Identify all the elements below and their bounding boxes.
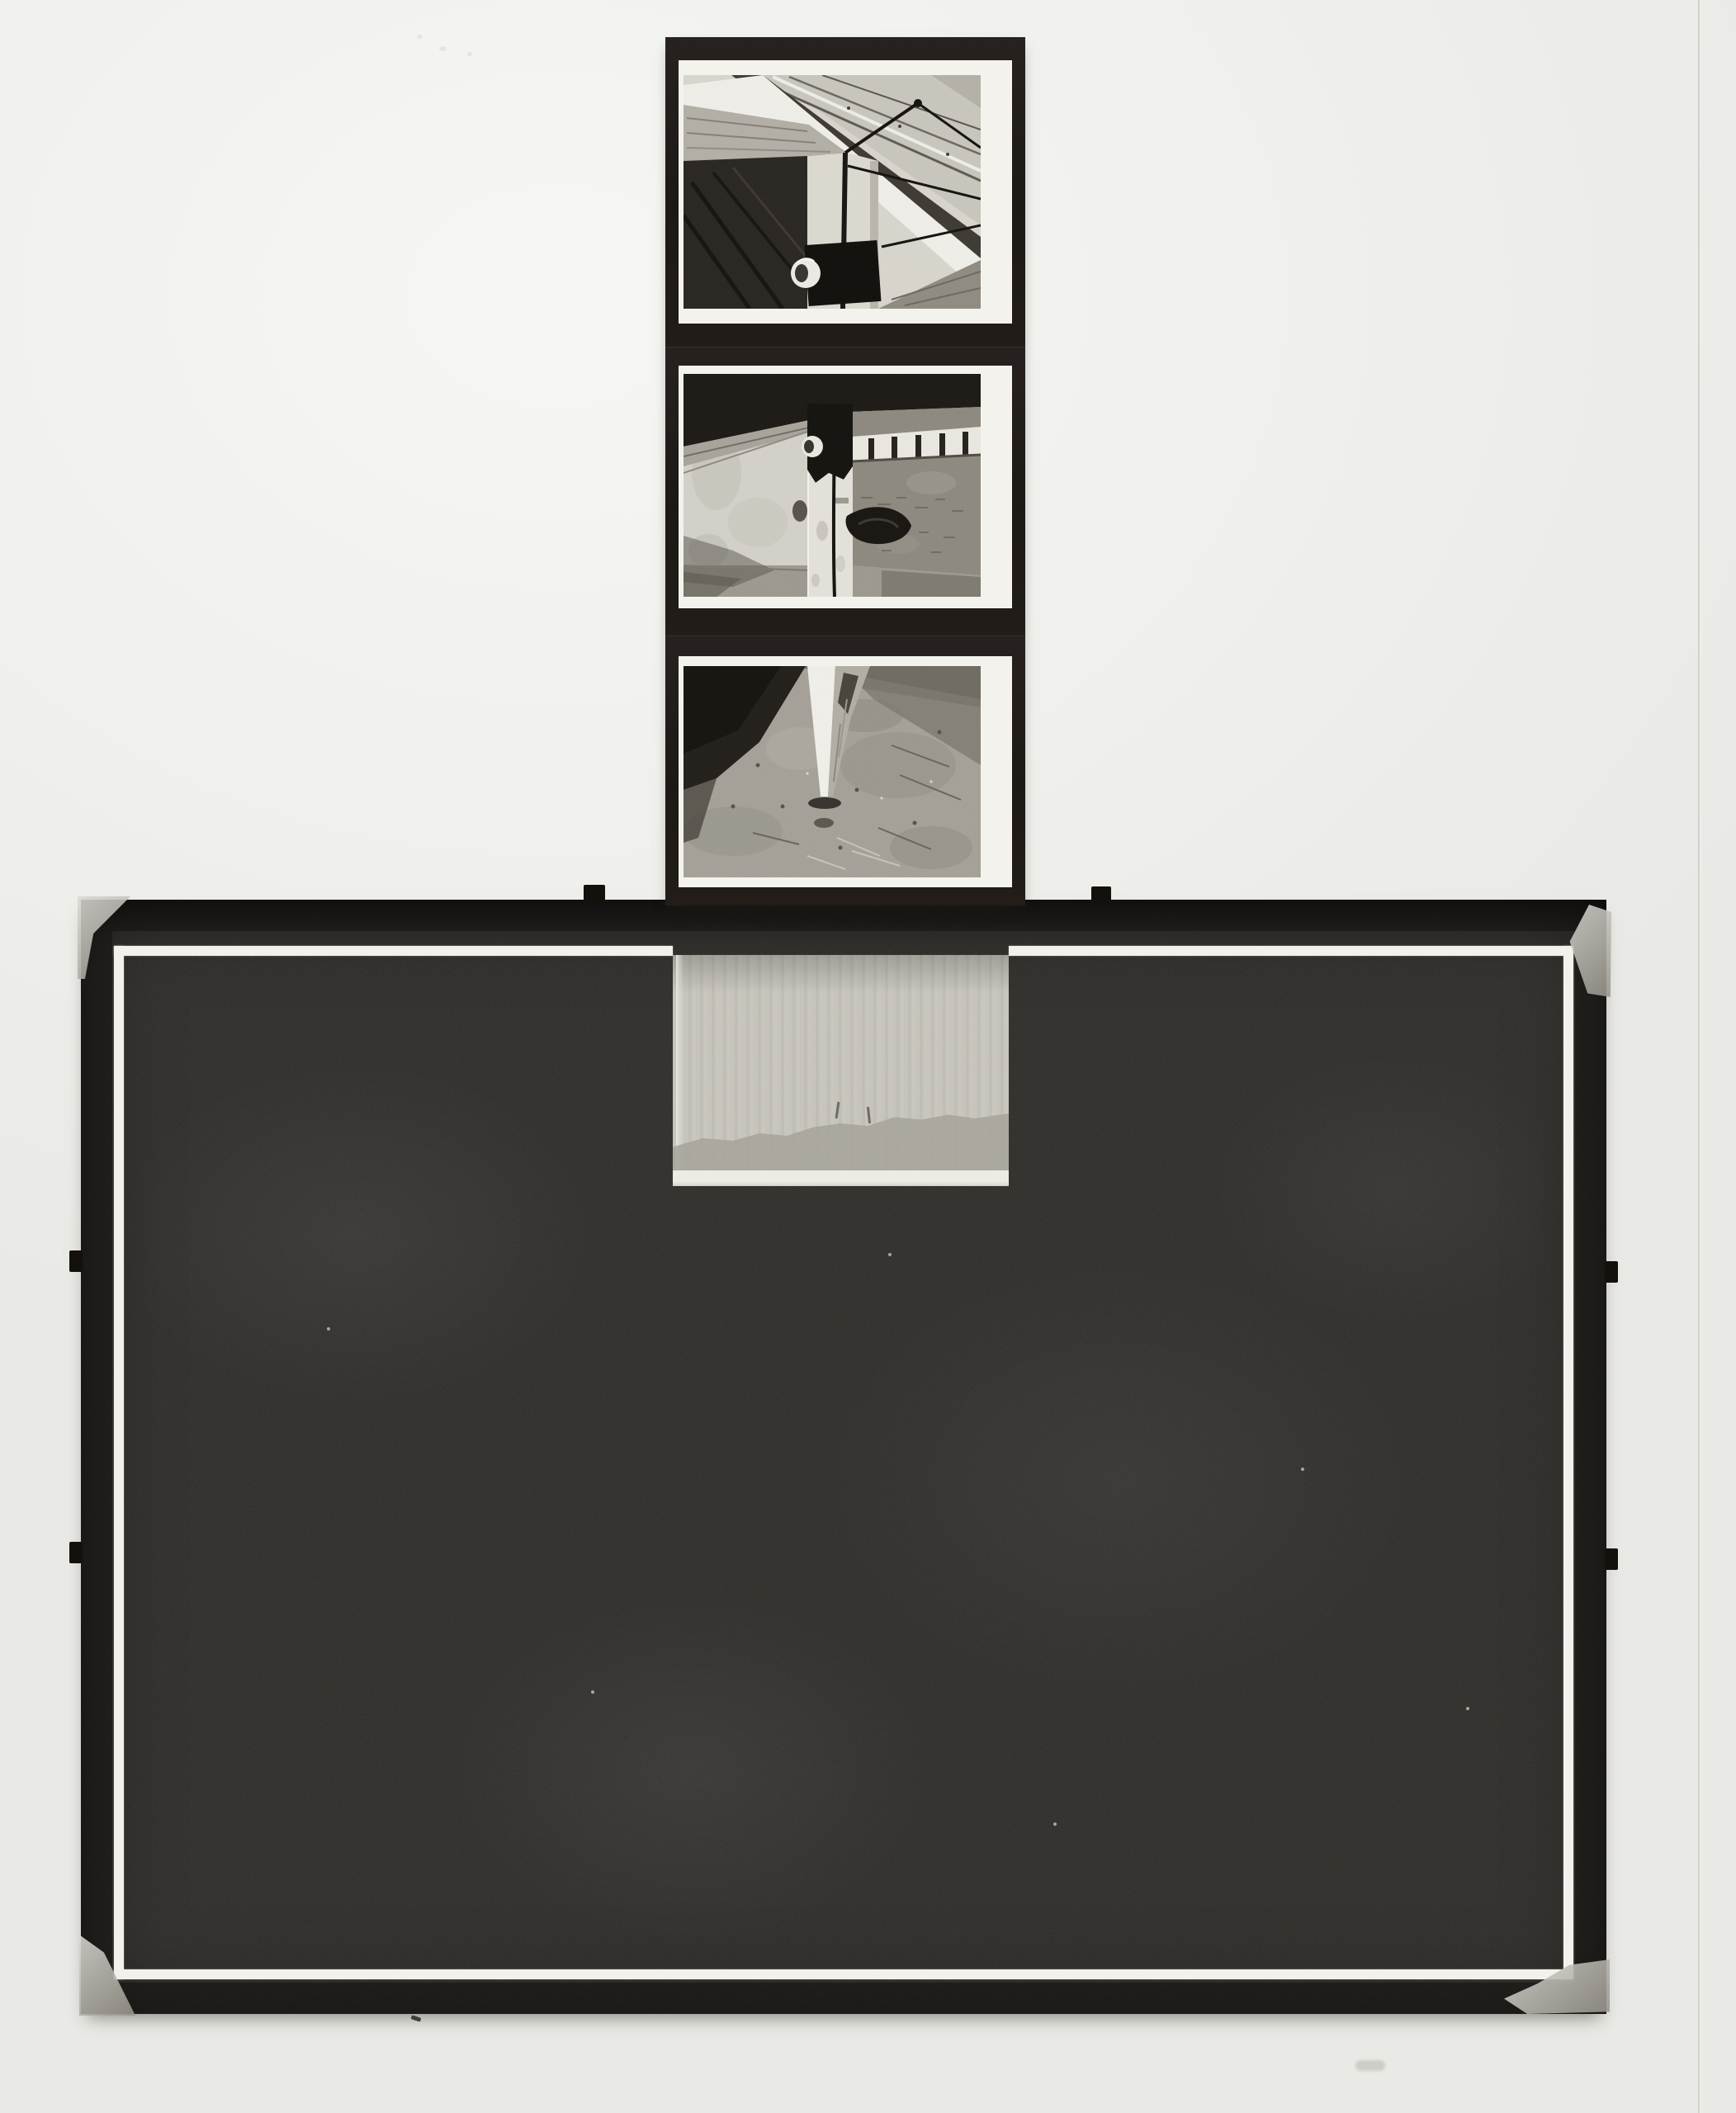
photo-post-base <box>684 666 981 877</box>
framed-photo-stack <box>665 37 1025 905</box>
photo-mat <box>679 60 1012 324</box>
corner-bracket-bottom-right <box>1504 1959 1610 2014</box>
mounting-tab-left-lower <box>69 1542 83 1563</box>
photo-mat <box>679 656 1012 887</box>
panel-border-line-left <box>114 946 124 1979</box>
panel-border-line-top-right <box>1009 946 1573 956</box>
framed-photo-bottom <box>665 636 1025 905</box>
framed-photo-middle <box>665 347 1025 636</box>
wall-smudge <box>1355 2060 1385 2071</box>
panel-border-line-bottom <box>114 1969 1573 1979</box>
panel-border-line-top-left <box>114 946 673 956</box>
chalk-specks <box>327 1253 1469 1826</box>
panel-notch <box>673 955 1009 1186</box>
notch-white-edge <box>676 955 684 1170</box>
wall-speck <box>439 46 447 51</box>
mounting-tab-right-upper <box>1605 1261 1618 1283</box>
framed-photo-top <box>665 37 1025 347</box>
gallery-wall-photograph <box>0 0 1736 2113</box>
wall-speck <box>417 35 423 39</box>
dark-panel <box>81 900 1606 2014</box>
photo-mat <box>679 366 1012 608</box>
photo-ceiling-junction <box>684 75 981 309</box>
wall-speck <box>467 52 472 56</box>
mounting-tab-right-lower <box>1605 1548 1618 1570</box>
wall-nail <box>411 2015 422 2021</box>
mounting-tab-left-upper <box>69 1250 83 1272</box>
panel-border-line-right <box>1563 946 1573 1979</box>
photo-post-in-hall <box>684 374 981 597</box>
notch-white-sill <box>673 1170 1009 1186</box>
mounting-tab-top-right <box>1091 886 1111 901</box>
mounting-tab-top-left <box>584 885 605 901</box>
wall-seam-line <box>1698 0 1700 2113</box>
